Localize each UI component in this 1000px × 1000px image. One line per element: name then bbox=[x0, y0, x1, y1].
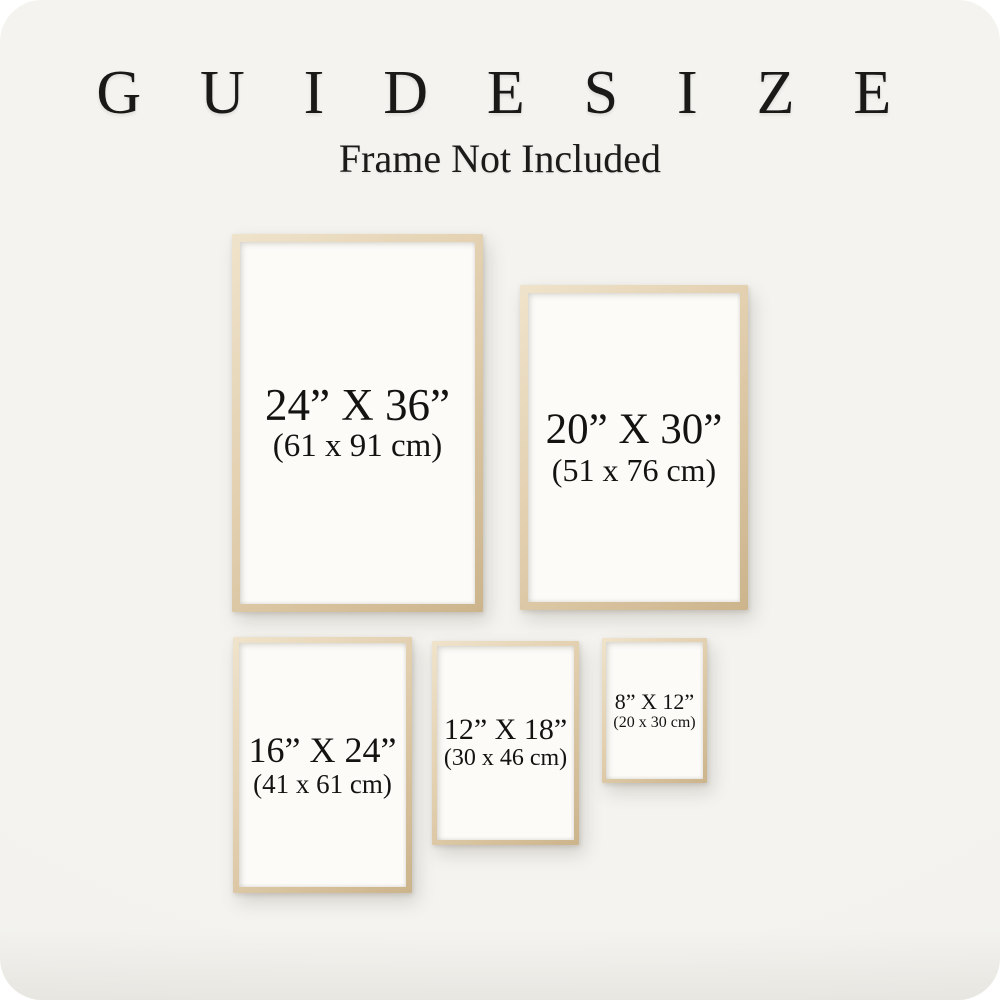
frame-12x18-paper: 12” X 18” (30 x 46 cm) bbox=[437, 646, 574, 840]
frame-8x12: 8” X 12” (20 x 30 cm) bbox=[602, 638, 707, 783]
header: G U I D E S I Z E Frame Not Included bbox=[0, 58, 1000, 182]
frame-cm-label: (20 x 30 cm) bbox=[613, 714, 695, 731]
frame-cm-label: (51 x 76 cm) bbox=[552, 453, 716, 488]
frame-20x30: 20” X 30” (51 x 76 cm) bbox=[520, 285, 748, 610]
frame-cm-label: (61 x 91 cm) bbox=[273, 429, 443, 465]
frame-size-label: 12” X 18” bbox=[444, 714, 567, 746]
frame-cm-label: (30 x 46 cm) bbox=[444, 746, 567, 772]
frame-size-label: 24” X 36” bbox=[265, 381, 450, 430]
page-subtitle: Frame Not Included bbox=[0, 135, 1000, 182]
size-guide-canvas: G U I D E S I Z E Frame Not Included 24”… bbox=[0, 0, 1000, 1000]
frame-20x30-paper: 20” X 30” (51 x 76 cm) bbox=[528, 293, 740, 602]
frame-8x12-paper: 8” X 12” (20 x 30 cm) bbox=[606, 642, 703, 779]
frame-size-label: 8” X 12” bbox=[615, 690, 694, 714]
frame-24x36-paper: 24” X 36” (61 x 91 cm) bbox=[240, 242, 475, 604]
frame-size-label: 20” X 30” bbox=[546, 407, 723, 453]
frame-size-label: 16” X 24” bbox=[249, 731, 397, 770]
frame-16x24-paper: 16” X 24” (41 x 61 cm) bbox=[239, 643, 406, 887]
bottom-shading bbox=[0, 930, 1000, 1000]
frame-12x18: 12” X 18” (30 x 46 cm) bbox=[432, 641, 579, 845]
frame-cm-label: (41 x 61 cm) bbox=[253, 770, 392, 799]
page-title: G U I D E S I Z E bbox=[0, 58, 1000, 129]
frame-24x36: 24” X 36” (61 x 91 cm) bbox=[232, 234, 483, 612]
frame-16x24: 16” X 24” (41 x 61 cm) bbox=[233, 637, 412, 893]
